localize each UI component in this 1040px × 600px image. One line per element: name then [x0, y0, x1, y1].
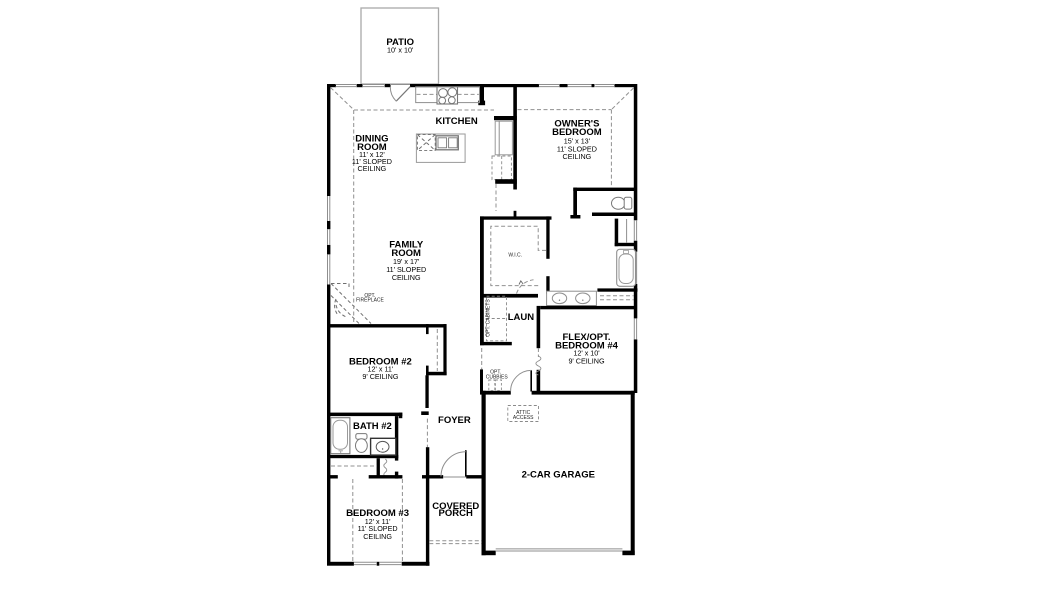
svg-text:ACCESS: ACCESS: [513, 415, 534, 421]
svg-text:CEILING: CEILING: [358, 164, 387, 173]
svg-text:9' CEILING: 9' CEILING: [568, 356, 605, 365]
svg-text:CEILING: CEILING: [363, 532, 392, 541]
svg-text:BATH #2: BATH #2: [353, 421, 392, 432]
svg-text:PORCH: PORCH: [439, 508, 473, 519]
svg-text:W.I.C.: W.I.C.: [508, 253, 522, 259]
svg-text:KITCHEN: KITCHEN: [435, 116, 477, 127]
svg-text:10' x 10': 10' x 10': [387, 46, 414, 55]
svg-text:LAUN: LAUN: [508, 312, 535, 323]
svg-text:OPT. CABINETS: OPT. CABINETS: [486, 299, 492, 337]
svg-text:FOYER: FOYER: [438, 415, 471, 426]
svg-text:FIREPLACE: FIREPLACE: [356, 298, 384, 304]
svg-text:2-CAR GARAGE: 2-CAR GARAGE: [522, 470, 595, 481]
svg-text:CUBBIES: CUBBIES: [486, 374, 509, 380]
svg-text:CEILING: CEILING: [563, 152, 592, 161]
svg-text:CEILING: CEILING: [392, 273, 421, 282]
svg-text:9' CEILING: 9' CEILING: [362, 372, 399, 381]
